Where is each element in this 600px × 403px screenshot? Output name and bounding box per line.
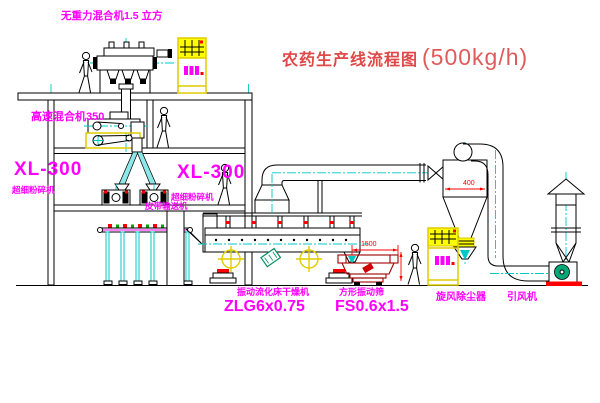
label-mill-name-left: 超细粉碎机 xyxy=(12,186,55,195)
induced-draft-fan xyxy=(546,262,582,286)
person-ground xyxy=(408,244,421,284)
main-duct xyxy=(262,163,448,213)
person-roof xyxy=(79,52,92,92)
building-column xyxy=(167,211,184,286)
person-second-floor xyxy=(157,107,170,147)
belt-conveyor xyxy=(98,224,203,285)
label-mill-model-left: XL-300 xyxy=(14,160,82,179)
control-cabinet-top xyxy=(178,38,206,93)
dimension-cyclone-diameter: 400 xyxy=(463,180,475,187)
fluid-bed-dryer xyxy=(198,213,368,283)
control-cabinet-ground xyxy=(428,228,458,285)
label-dryer-model: ZLG6x0.75 xyxy=(224,299,305,315)
label-high-speed-mixer: 高速混合机350 xyxy=(31,112,104,123)
dimension-screen-length: 1500 xyxy=(361,241,377,248)
belt-idlers xyxy=(108,224,164,228)
title-text: 农药生产线流程图 xyxy=(282,46,418,70)
label-screen-name: 方形振动筛 xyxy=(339,288,384,297)
label-dryer-name: 振动流化床干燥机 xyxy=(237,288,309,297)
title-capacity: (500kg/h) xyxy=(422,44,528,71)
y-chute xyxy=(115,152,160,190)
cabinet-nameplate-marks xyxy=(435,256,455,265)
label-fan: 引风机 xyxy=(507,293,537,303)
label-belt-conveyor: 皮带输送机 xyxy=(145,202,188,211)
cabinet-nameplate-marks xyxy=(184,66,204,75)
label-mill-model-right: XL-300 xyxy=(177,163,245,182)
label-cyclone: 旋风除尘器 xyxy=(436,293,486,303)
cad-flow-diagram: 农药生产线流程图 (500kg/h) 无重力混合机1.5 立方 高速混合机350… xyxy=(0,0,600,403)
label-screen-model: FS0.6x1.5 xyxy=(335,299,409,315)
page-title: 农药生产线流程图 (500kg/h) xyxy=(282,44,528,71)
label-gravity-mixer: 无重力混合机1.5 立方 xyxy=(61,11,163,22)
duct-damper-icon xyxy=(428,166,444,180)
